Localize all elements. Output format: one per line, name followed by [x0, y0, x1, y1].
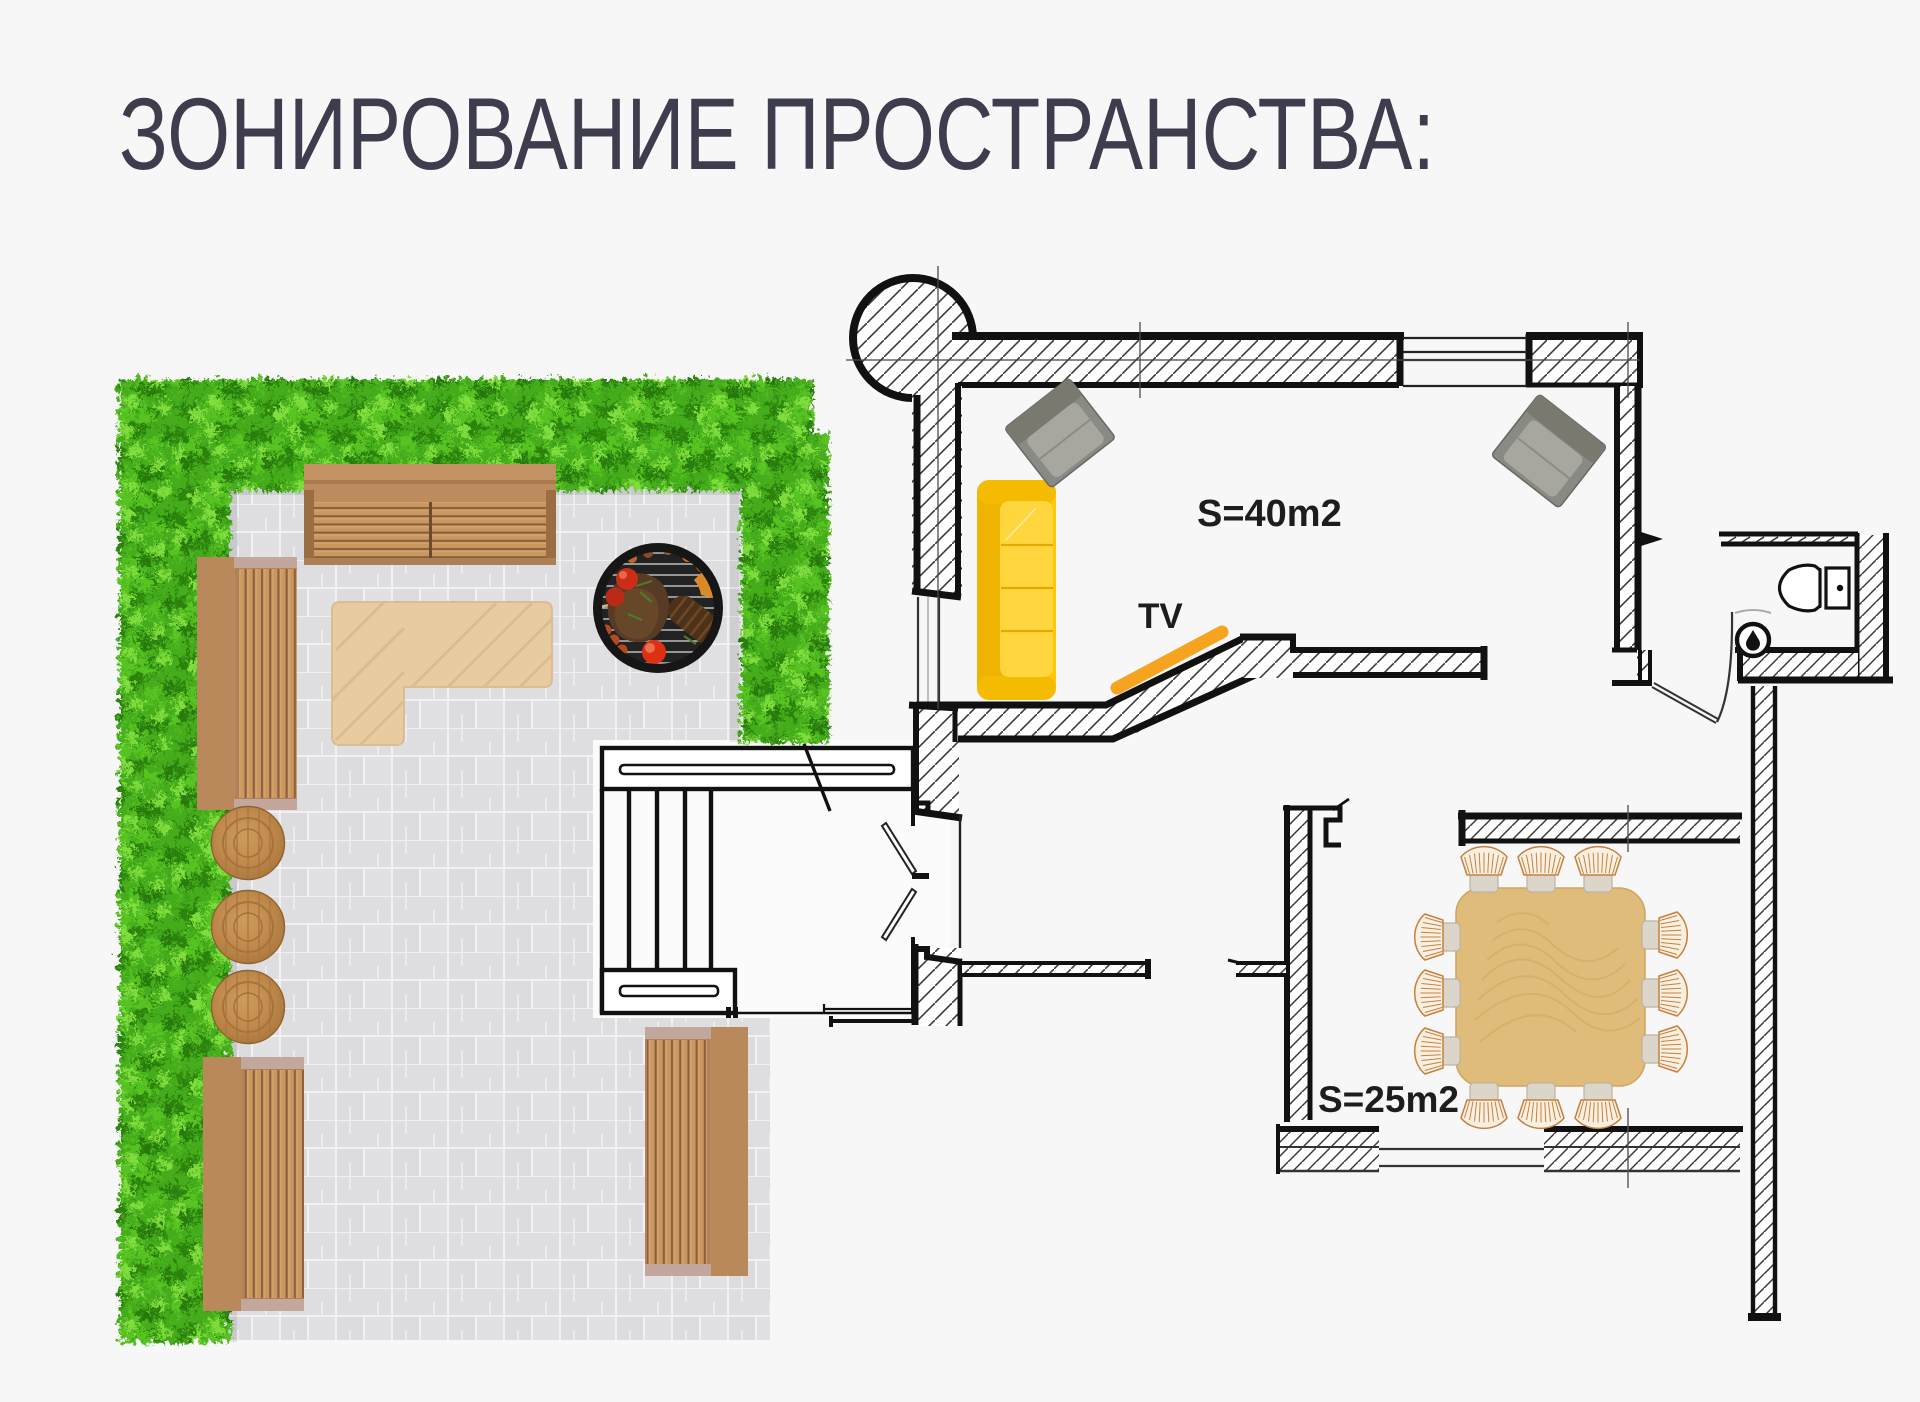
svg-text:ЗОНИРОВАНИЕ ПРОСТРАНСТВА:: ЗОНИРОВАНИЕ ПРОСТРАНСТВА: — [119, 77, 1435, 191]
svg-text:S=25m2: S=25m2 — [1318, 1079, 1459, 1120]
svg-text:TV: TV — [1138, 597, 1183, 636]
svg-text:S=40m2: S=40m2 — [1197, 493, 1342, 535]
